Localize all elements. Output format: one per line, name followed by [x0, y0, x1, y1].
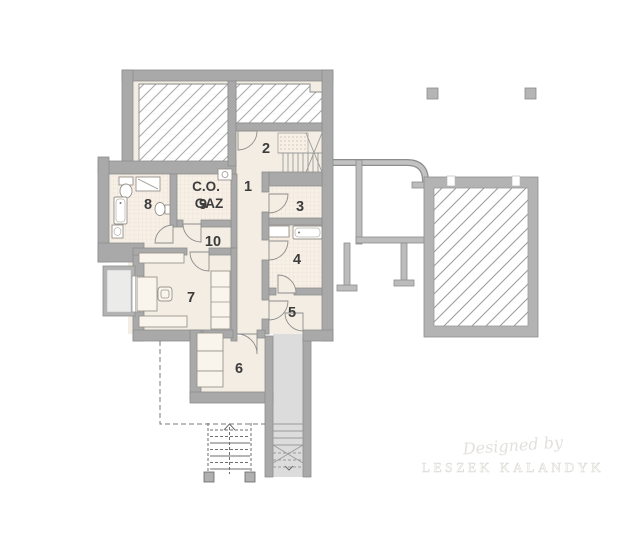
- hatched-room-left: [139, 84, 228, 166]
- stair-foot-left: [204, 472, 214, 482]
- watermark-line1: Designed by: [461, 432, 564, 458]
- pillars: [427, 88, 536, 99]
- room-label-1: 1: [244, 179, 252, 195]
- toilet-icon: [119, 177, 133, 198]
- room-label-2: 2: [262, 141, 270, 157]
- boiler-room-label-line1: C.O.: [192, 179, 220, 194]
- room-label-5: 5: [288, 305, 296, 321]
- room-label-3: 3: [296, 199, 304, 215]
- garden-walls: [333, 160, 438, 291]
- room-label-4: 4: [293, 252, 301, 268]
- terrace-hatch: [434, 188, 528, 326]
- room-label-10: 10: [205, 234, 221, 250]
- pillar-left: [427, 88, 438, 99]
- wardrobe: [211, 271, 230, 329]
- pillar-right: [525, 88, 536, 99]
- boiler-icon: [218, 169, 232, 180]
- bathtub-room4-icon: [293, 226, 322, 239]
- room-label-6: 6: [235, 361, 243, 377]
- floor-plan-drawing: 1 2 3 4 5 6 7 8 9 10 C.O. GAZ Designed b…: [0, 0, 638, 556]
- outdoor-stairs-dashed: [204, 423, 255, 482]
- desk: [137, 277, 157, 311]
- chair-icon: [158, 287, 172, 301]
- room6-shelves: [197, 333, 223, 387]
- room-label-7: 7: [187, 290, 195, 306]
- shelf-bottom: [139, 316, 187, 327]
- watermark: Designed by LESZEK KALANDYK: [422, 432, 605, 475]
- shelf-top: [139, 253, 184, 263]
- stairwell-floor: [273, 334, 303, 477]
- vanity-icon: [269, 226, 289, 237]
- shower-icon: [136, 177, 160, 191]
- stair-landing: [278, 133, 308, 153]
- boiler-room-label-line2: GAZ: [195, 196, 224, 211]
- floor-plan-page: 1 2 3 4 5 6 7 8 9 10 C.O. GAZ Designed b…: [0, 0, 638, 556]
- stair-foot-right: [245, 472, 255, 482]
- room-label-8: 8: [144, 197, 152, 213]
- watermark-line2: LESZEK KALANDYK: [422, 460, 605, 475]
- terrace: [424, 176, 538, 337]
- hatched-room-right: [236, 84, 322, 123]
- sink-icon: [112, 225, 123, 238]
- bathtub-icon: [114, 197, 127, 224]
